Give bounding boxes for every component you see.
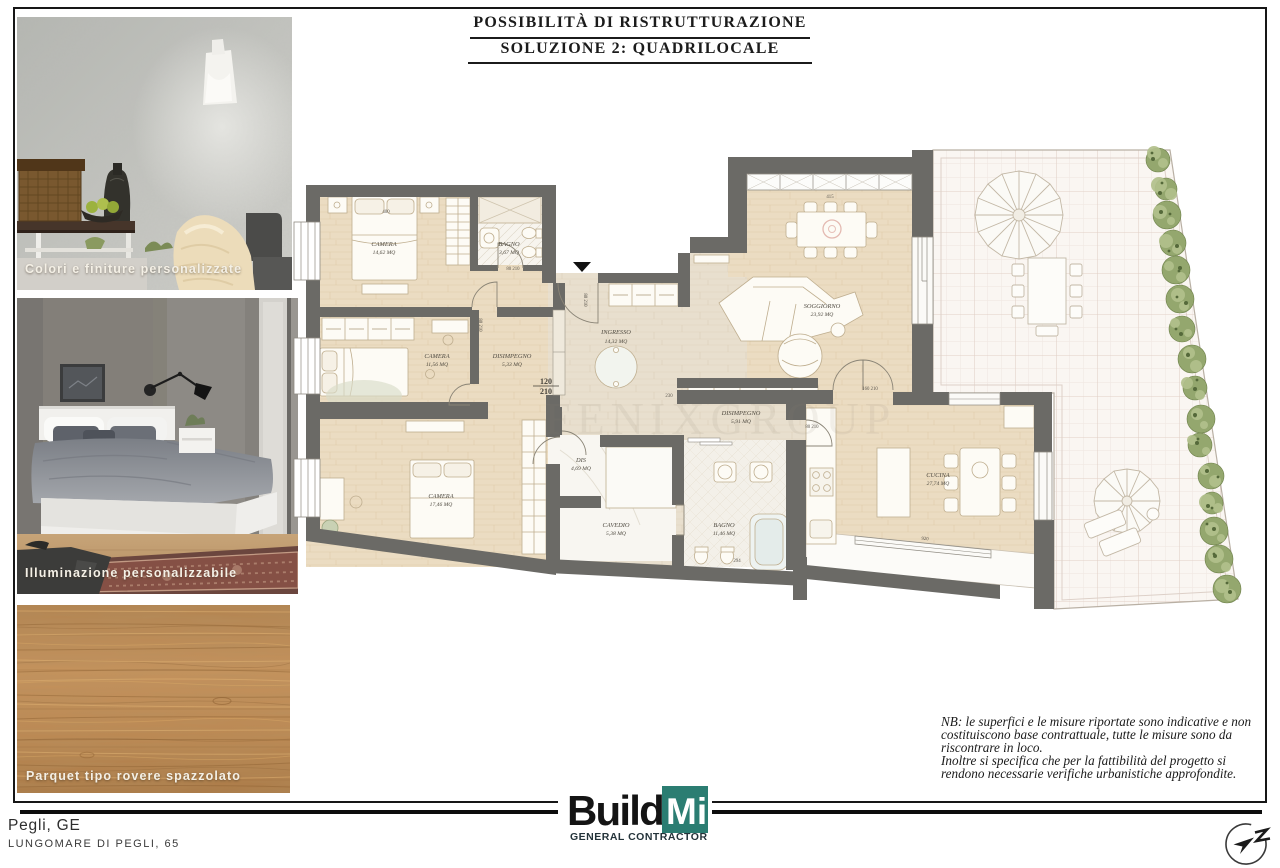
svg-text:160 210: 160 210	[862, 387, 878, 392]
svg-text:INGRESSO: INGRESSO	[600, 329, 631, 336]
svg-text:FENIXGROUP: FENIXGROUP	[545, 393, 896, 444]
svg-text:11,46 MQ: 11,46 MQ	[713, 531, 735, 537]
svg-text:BAGNO: BAGNO	[498, 241, 520, 248]
svg-text:17,46 MQ: 17,46 MQ	[430, 502, 453, 508]
svg-text:11,56 MQ: 11,56 MQ	[426, 362, 448, 368]
svg-text:3,67 MQ: 3,67 MQ	[498, 250, 519, 256]
svg-text:CAMERA: CAMERA	[424, 353, 449, 360]
svg-text:DISIMPEGNO: DISIMPEGNO	[492, 353, 532, 360]
svg-text:SOGGIORNO: SOGGIORNO	[804, 303, 841, 310]
svg-text:23,92 MQ: 23,92 MQ	[811, 312, 834, 318]
svg-text:80 210: 80 210	[506, 267, 520, 272]
svg-text:DIS: DIS	[575, 457, 587, 464]
svg-text:CAVEDIO: CAVEDIO	[602, 522, 629, 529]
svg-text:5,38 MQ: 5,38 MQ	[606, 531, 626, 537]
svg-text:4,69 MQ: 4,69 MQ	[571, 466, 591, 472]
svg-text:CAMERA: CAMERA	[371, 241, 396, 248]
svg-text:415: 415	[826, 195, 834, 200]
svg-text:920: 920	[921, 537, 929, 543]
svg-text:120: 120	[540, 377, 552, 386]
svg-text:80 210: 80 210	[582, 293, 587, 307]
svg-text:27,74 MQ: 27,74 MQ	[927, 481, 950, 487]
svg-text:14,32 MQ: 14,32 MQ	[605, 339, 628, 345]
svg-text:80 210: 80 210	[477, 318, 482, 332]
svg-text:14,62 MQ: 14,62 MQ	[373, 250, 396, 256]
svg-text:5,33 MQ: 5,33 MQ	[502, 362, 522, 368]
svg-text:CAMERA: CAMERA	[428, 493, 453, 500]
svg-text:BAGNO: BAGNO	[713, 522, 735, 529]
svg-text:294: 294	[733, 559, 741, 564]
svg-text:CUCINA: CUCINA	[926, 472, 950, 479]
svg-text:400: 400	[382, 210, 390, 215]
